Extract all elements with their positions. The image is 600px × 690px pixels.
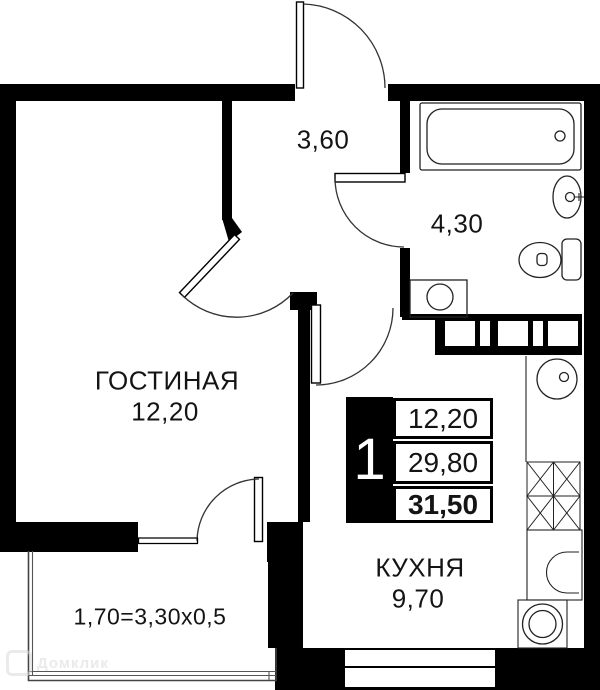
room-count-value: 1 — [353, 431, 385, 489]
toilet-bowl — [519, 243, 561, 278]
hallway-area-label: 3,60 — [297, 125, 350, 156]
floor-plan: 3,60 4,30 ГОСТИНАЯ 12,20 КУХНЯ 9,70 1,70… — [0, 0, 600, 690]
balcony-window-line — [138, 538, 198, 544]
toilet-tank — [562, 239, 581, 280]
kitchen-washer-inner — [529, 611, 556, 638]
bathtub-inner — [427, 109, 574, 164]
bathtub-drain — [555, 131, 565, 141]
kitchen-sink — [537, 359, 577, 399]
plan-linework — [0, 0, 600, 690]
balcony-door-leaf — [255, 478, 263, 542]
kitchen-door-leaf — [312, 305, 321, 383]
toilet-hole — [537, 254, 547, 266]
watermark-text: Домклик — [37, 655, 109, 672]
living-door-arc — [182, 293, 293, 317]
kitchen-boiler — [546, 552, 579, 593]
living-area-row: 12,20 — [393, 398, 493, 439]
living-room-area-label: 12,20 — [131, 397, 199, 428]
bathroom-door-arc — [335, 178, 404, 247]
bathroom-area-label: 4,30 — [431, 209, 484, 240]
kitchen-sink-drain — [560, 373, 569, 382]
stove-icon — [527, 462, 580, 530]
washing-machine — [410, 280, 467, 317]
washbasin-faucet — [566, 193, 575, 202]
kitchen-area-label: 9,70 — [392, 584, 445, 615]
kitchen-door-arc — [316, 308, 393, 385]
living-room-name-label: ГОСТИНАЯ — [95, 366, 239, 397]
kitchen-appliance-block — [527, 530, 582, 600]
washbasin-faucet-line — [574, 193, 584, 201]
watermark-logo-icon — [6, 650, 32, 676]
washing-machine-drum — [427, 284, 453, 310]
total-area-row: 31,50 — [393, 486, 493, 523]
kitchen-name-label: КУХНЯ — [375, 553, 464, 584]
living-door-leaf — [180, 235, 240, 298]
room-count-box: 1 — [346, 397, 393, 523]
kitchen-washer — [518, 600, 567, 648]
entrance-door-leaf — [297, 2, 304, 88]
balcony-door-arc — [197, 479, 259, 541]
bathtub-outer — [420, 103, 581, 170]
apartment-area-row: 29,80 — [393, 441, 493, 484]
entrance-door-arc — [304, 4, 386, 88]
watermark: Домклик — [6, 650, 109, 676]
balcony-area-label: 1,70=3,30x0,5 — [74, 604, 227, 631]
bathroom-door-leaf — [335, 174, 405, 183]
